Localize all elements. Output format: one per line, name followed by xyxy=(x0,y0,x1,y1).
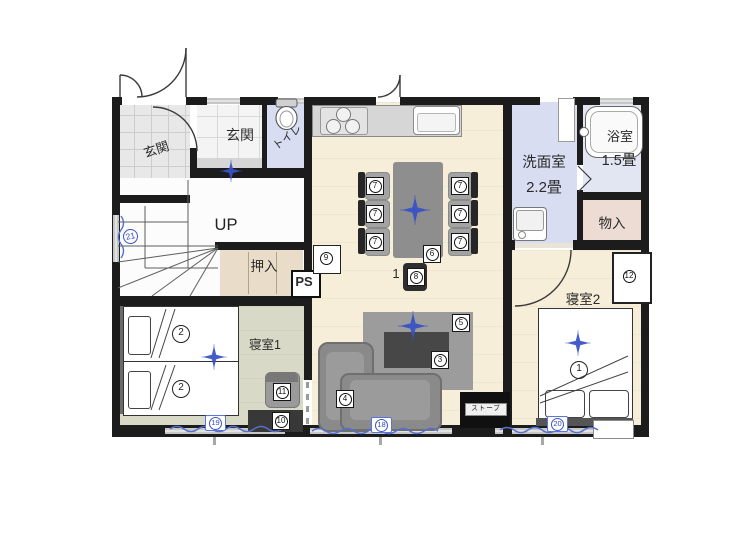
marker-chair: 7 xyxy=(451,205,469,223)
marker-bed-bedroom1: 2 xyxy=(172,325,190,343)
pillow xyxy=(545,390,585,418)
wall xyxy=(186,97,207,105)
heater-label-strip: ストーブ xyxy=(465,403,507,416)
window-hall xyxy=(207,98,240,104)
room-label-bathroom-size: 1.5畳 xyxy=(594,149,644,170)
marker-chair: 7 xyxy=(366,177,384,195)
pillow xyxy=(128,371,151,409)
marker-chair: 7 xyxy=(451,233,469,251)
marker-tv-board: 10 xyxy=(272,412,290,430)
marker-bed-bedroom2: 1 xyxy=(570,361,588,379)
heater-label: ストーブ xyxy=(471,405,501,412)
wall xyxy=(400,97,540,105)
pillow xyxy=(128,316,151,355)
room-label-hall: 玄関 xyxy=(215,125,265,145)
marker-window-bedroom1: 19 xyxy=(205,415,226,431)
wall-right-divider xyxy=(503,97,512,437)
exterior-tick xyxy=(213,437,216,445)
room-label-ps: PS xyxy=(291,274,317,289)
marker-dining-table: 6 xyxy=(423,245,441,263)
wall xyxy=(503,240,515,250)
window-bathroom xyxy=(600,98,633,104)
marker-living-table: 3 xyxy=(431,351,449,369)
sliding-opening-dashes xyxy=(306,382,309,425)
washing-machine-knob xyxy=(518,231,526,239)
pillow xyxy=(589,390,629,418)
stairs-up-label: UP xyxy=(206,216,246,235)
marker-kitchen-side: 9 xyxy=(318,250,334,266)
washing-machine-inner xyxy=(516,210,544,231)
room-label-storage: 物入 xyxy=(583,212,641,232)
marker-chair: 7 xyxy=(366,205,384,223)
wall-bedroom1-top xyxy=(112,296,312,306)
window-stairs-left xyxy=(113,215,119,262)
room-label-bathroom: 浴室 xyxy=(597,126,643,145)
floor-plan: ストーブ xyxy=(0,0,755,534)
marker-chair: 7 xyxy=(451,177,469,195)
exterior-tick xyxy=(541,437,544,445)
threshold-bedroom2-door xyxy=(515,243,573,248)
dining-table xyxy=(393,162,443,258)
kitchen-sink-inner xyxy=(417,113,456,132)
wall xyxy=(573,240,648,250)
wall xyxy=(240,97,278,105)
exterior-step xyxy=(593,420,634,439)
wall-left xyxy=(112,97,120,437)
room-label-bedroom1: 寝室1 xyxy=(240,334,290,353)
burner-circle xyxy=(326,119,341,134)
marker-window-bedroom2: 20 xyxy=(547,416,568,432)
wall xyxy=(112,195,190,203)
marker-window-living: 18 xyxy=(371,417,392,433)
marker-sofa: 4 xyxy=(336,390,354,408)
marker-cabinet: 12 xyxy=(621,268,637,284)
exterior-tick xyxy=(379,437,382,445)
room-label-closet: 押入 xyxy=(236,255,292,275)
window-toilet xyxy=(278,98,304,104)
wall-closet-top xyxy=(215,242,312,250)
sofa-main-cushion xyxy=(350,380,430,420)
marker-chair: 7 xyxy=(366,233,384,251)
wall-storage-top xyxy=(577,192,648,200)
side-cabinet-lid xyxy=(265,372,298,382)
bath-faucet-icon xyxy=(579,127,589,137)
washroom-door-leaf xyxy=(558,98,575,142)
marker-side-cabinet: 11 xyxy=(273,383,291,401)
wall xyxy=(190,168,312,178)
marker-bed-bedroom1: 2 xyxy=(172,380,190,398)
marker-rug: 5 xyxy=(452,314,470,332)
room-label-bedroom2: 寝室2 xyxy=(556,288,610,308)
room-label-washroom: 洗面室 xyxy=(511,151,577,172)
burner-circle xyxy=(345,119,360,134)
room-label-washroom-size: 2.2畳 xyxy=(511,176,577,197)
dining-note-label: 1 xyxy=(390,266,402,281)
marker-end-chair: 8 xyxy=(407,268,425,286)
wall-main-divider xyxy=(304,97,312,380)
wall xyxy=(304,97,376,105)
